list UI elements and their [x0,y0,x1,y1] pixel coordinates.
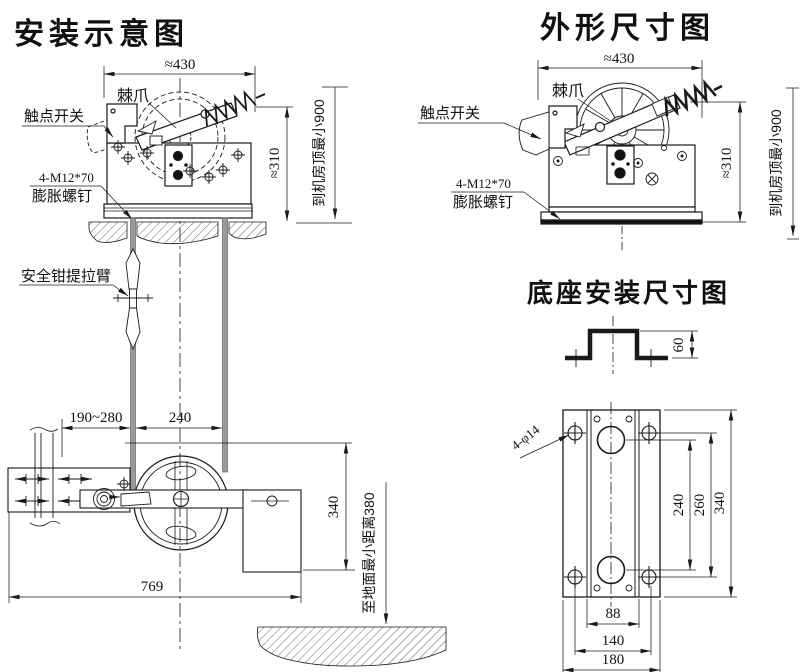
to-floor-text: 至地面最小距离380 [361,492,377,614]
outline-machine [519,83,722,252]
hole-spec-text: 4-φ14 [508,422,542,453]
drawing-page: 安装示意图 ≈430 [0,0,800,672]
install-dim-floor: 至地面最小距离380 [361,482,386,624]
expansion-bolt-label: 膨胀螺钉 [32,188,92,205]
hat-profile: 60 [565,316,698,374]
install-view: 安装示意图 ≈430 [8,17,446,666]
plate-height-text: 340 [712,492,728,515]
outline-dim-height: ≈310 [690,102,746,222]
tail-height-text: 340 [326,496,342,519]
install-machine [87,92,265,218]
outline-dim-width-text: ≈430 [604,51,635,67]
hat-height-text: 60 [671,338,687,353]
bolt-width-text: 140 [602,633,625,649]
expansion-bolt-label: 膨胀螺钉 [453,194,513,211]
plate-width-text: 180 [602,652,625,668]
pawl-label: 棘爪 [117,87,149,105]
safety-arm-label: 安全钳提拉臂 [21,267,111,285]
base-plate: 4-φ14 [508,402,660,607]
rope-span-text: 240 [169,410,192,426]
base-view-title: 底座安装尺寸图 [527,278,730,309]
bolt-spec-label: 4-M12*70 [456,176,511,191]
outline-dim-ceiling: 到机房顶最小900 [768,88,799,239]
install-dim-width-text: ≈430 [165,57,196,73]
inner-width-text: 88 [606,606,621,622]
ceiling-slab [89,222,266,244]
bolts-span-text: 260 [692,494,708,517]
holes-span-text: 240 [671,494,687,517]
install-view-title: 安装示意图 [14,17,189,52]
install-dim-spans: 190~280 240 [62,410,222,457]
pawl-label: 棘爪 [552,82,584,100]
tension-device [8,428,352,573]
install-dim-height-text: ≈310 [267,148,283,179]
outline-view: 外形尺寸图 ≈430 [418,11,799,252]
hole-spec-label-group: 4-φ14 [508,422,569,458]
install-dim-tail: 340 [303,443,355,570]
rail-range-text: 190~280 [69,410,122,426]
outline-view-title: 外形尺寸图 [540,11,715,46]
install-dim-ceiling: 到机房顶最小900 [296,87,352,223]
install-dim-ceiling-text: 到机房顶最小900 [311,99,327,207]
technical-drawing: 安装示意图 ≈430 [0,0,800,672]
bolt-spec-label: 4-M12*70 [39,170,94,185]
base-width-text: 769 [141,579,164,595]
base-dims-vertical: 240 260 340 [626,410,737,597]
base-dims-horizontal: 88 140 180 [563,586,660,672]
install-dim-height: ≈310 [256,107,293,221]
outline-dim-ceiling-text: 到机房顶最小900 [768,109,784,217]
hat-dim-60: 60 [640,331,698,358]
outline-dim-height-text: ≈310 [719,148,735,179]
base-view: 底座安装尺寸图 60 [508,278,737,672]
contact-switch-label: 触点开关 [420,105,480,122]
contact-switch-label: 触点开关 [24,108,84,125]
governor-ropes [113,218,228,490]
ground-hatch [257,627,446,666]
